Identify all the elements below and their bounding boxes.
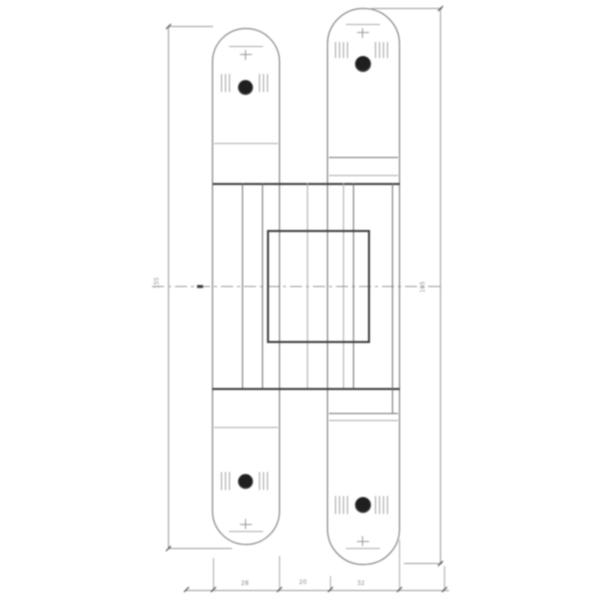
hinge-body-line xyxy=(392,183,393,413)
bottom-dimension-label-right: 32 xyxy=(357,581,365,587)
knurl-marks-icon xyxy=(221,472,233,490)
bottom-dimension-label-mid: 20 xyxy=(299,580,307,586)
countersink-icon xyxy=(346,24,380,25)
countersink-cross-icon xyxy=(357,32,369,33)
right-dimension-extension-top xyxy=(372,8,442,9)
hinge-body-bottom-edge xyxy=(212,388,400,390)
bottom-extension-line xyxy=(279,556,280,590)
bottom-extension-line xyxy=(213,558,214,590)
left-dimension-label: 155 xyxy=(155,277,161,288)
right-leaf-band-bottom2 xyxy=(329,420,398,421)
countersink-icon xyxy=(346,548,380,549)
knurl-marks-icon xyxy=(221,74,233,92)
countersink-icon xyxy=(229,46,263,47)
hinge-body-center-block xyxy=(267,230,370,343)
technical-drawing-canvas: 155 165 xyxy=(0,0,600,600)
right-dimension-label: 165 xyxy=(421,281,427,292)
bottom-extension-line xyxy=(399,540,400,590)
screw-head-icon xyxy=(355,56,371,72)
left-leaf-band-top xyxy=(214,143,278,144)
left-dimension-extension-top xyxy=(168,26,213,27)
center-axis-mark xyxy=(197,285,203,288)
screw-head-icon xyxy=(238,474,253,489)
countersink-cross-icon xyxy=(240,54,252,55)
left-dimension-line xyxy=(168,26,169,548)
left-dimension-extension-bottom xyxy=(168,548,232,549)
knurl-marks-icon xyxy=(259,472,271,490)
countersink-icon xyxy=(229,531,263,532)
bottom-dimension-line xyxy=(185,590,449,591)
screw-head-icon xyxy=(238,80,253,95)
knurl-marks-icon xyxy=(335,496,349,514)
screw-head-icon xyxy=(355,497,371,513)
right-leaf-band-bottom xyxy=(329,413,398,414)
dim-tick-icon xyxy=(438,561,444,567)
countersink-cross-icon xyxy=(240,524,252,525)
bottom-extension-line xyxy=(444,566,445,590)
knurl-marks-icon xyxy=(259,74,271,92)
hinge-drawing: 155 165 xyxy=(0,0,600,600)
knurl-marks-icon xyxy=(375,496,389,514)
right-dimension-extension-bottom xyxy=(404,563,442,564)
knurl-marks-icon xyxy=(335,42,351,58)
countersink-cross-icon xyxy=(357,541,369,542)
left-leaf-band-bottom xyxy=(214,427,278,428)
bottom-dimension-label-left: 28 xyxy=(241,581,249,587)
hinge-body-line xyxy=(242,183,243,388)
right-leaf-band-top xyxy=(329,157,398,158)
knurl-marks-icon xyxy=(375,42,391,58)
hinge-body-line xyxy=(262,183,263,388)
right-leaf-band-top2 xyxy=(329,175,398,176)
